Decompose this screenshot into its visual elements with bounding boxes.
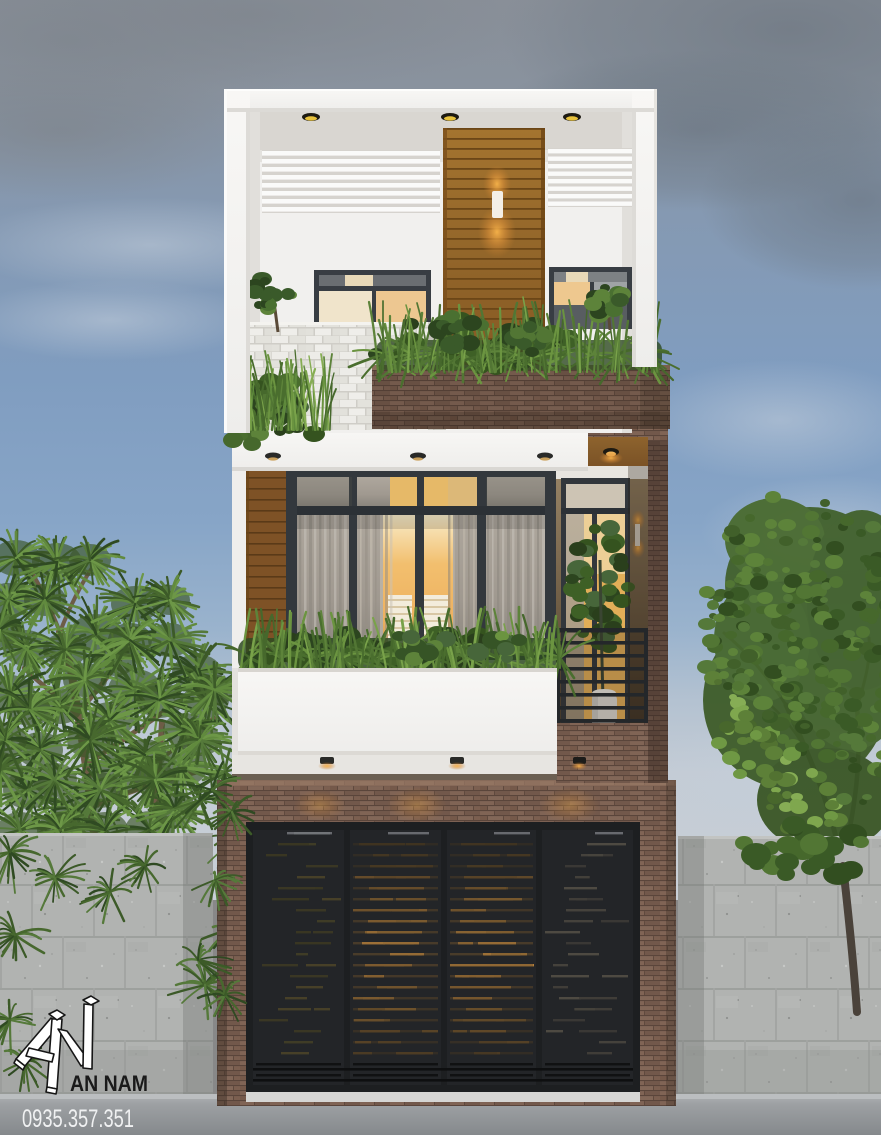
svg-text:AN NAM: AN NAM xyxy=(70,1071,148,1096)
svg-text:0935.357.351: 0935.357.351 xyxy=(22,1105,134,1133)
